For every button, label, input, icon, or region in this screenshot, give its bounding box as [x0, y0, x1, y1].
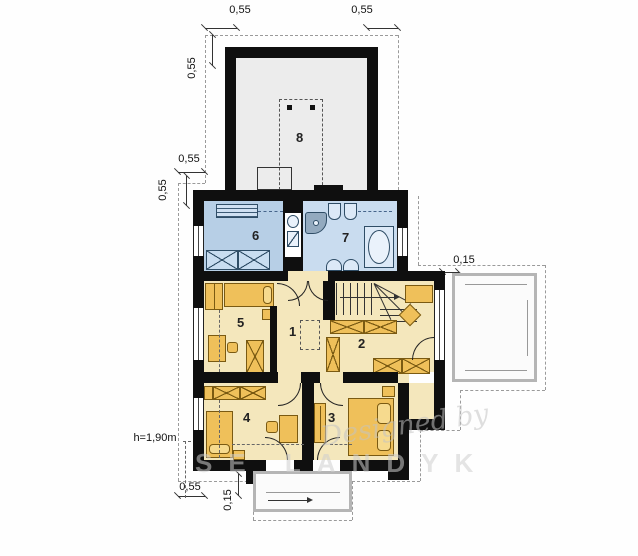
wall-segment	[225, 47, 236, 196]
wall-segment	[343, 372, 398, 383]
dresser	[405, 285, 433, 303]
wardrobe	[330, 320, 364, 334]
window	[193, 398, 204, 430]
desk	[208, 335, 226, 362]
hall-floor	[288, 271, 328, 281]
window	[193, 226, 204, 256]
eaves-outline	[205, 35, 398, 36]
stairs-treads	[336, 283, 374, 315]
post-marker	[287, 105, 292, 110]
dim-label-bottom-left: 0,55	[170, 481, 210, 493]
eaves-outline	[352, 481, 420, 482]
guide-line	[358, 211, 392, 212]
wall-segment	[270, 306, 277, 372]
wall-segment	[193, 271, 288, 281]
bathtub	[364, 226, 394, 268]
washbasin	[343, 259, 359, 271]
balcony-door-window	[434, 290, 445, 360]
dim-label-step-h: 0,55	[169, 153, 209, 165]
garage-bench	[257, 167, 292, 190]
dim-label-step-v: 0,55	[157, 170, 169, 210]
wardrobe	[240, 386, 266, 400]
room-label-6: 6	[252, 228, 259, 243]
eaves-outline	[178, 183, 205, 184]
eaves-outline	[418, 196, 419, 265]
washing-machine	[287, 215, 299, 228]
window	[397, 228, 408, 256]
wardrobe	[402, 358, 430, 374]
room-label-1: 1	[289, 324, 296, 339]
guide-line	[258, 211, 283, 212]
cabinet	[204, 386, 213, 400]
chair	[227, 342, 238, 353]
dim-label-garage-side: 0,55	[186, 48, 198, 88]
eaves-outline	[253, 520, 352, 521]
chair	[266, 421, 278, 433]
eaves-outline	[545, 265, 546, 390]
dim-label-top-right: 0,55	[342, 4, 382, 16]
dim-label-bottom-offset: 0,15	[222, 480, 234, 520]
dim-label-headroom: h=1,90m	[126, 432, 184, 444]
wardrobe	[213, 386, 240, 400]
wardrobe	[205, 283, 223, 310]
eaves-outline	[398, 35, 399, 190]
room-label-4: 4	[243, 410, 250, 425]
room-label-8: 8	[296, 130, 303, 145]
toilet	[328, 203, 341, 220]
balcony-east	[452, 273, 537, 382]
eaves-outline	[460, 390, 545, 391]
stairs-direction-arrow	[340, 297, 395, 298]
dim-label-top-left: 0,55	[220, 4, 260, 16]
watermark-caps: SE LANDYK	[195, 448, 489, 479]
wall-segment	[328, 271, 445, 281]
room-label-5: 5	[237, 315, 244, 330]
wardrobe	[238, 250, 270, 270]
wardrobe	[246, 340, 264, 373]
bidet	[344, 203, 357, 220]
wall-segment	[367, 47, 378, 196]
washbasin	[326, 259, 342, 271]
wall-segment	[193, 190, 408, 201]
room-label-7: 7	[342, 230, 349, 245]
knee-wall-line	[219, 310, 220, 372]
balcony-arrow	[268, 500, 308, 501]
drying-rack	[216, 204, 258, 218]
dim-line	[205, 28, 237, 29]
wall-segment	[193, 372, 278, 383]
dim-line	[178, 496, 205, 497]
wardrobe	[326, 337, 340, 372]
wardrobe	[206, 250, 238, 270]
wardrobe	[364, 320, 397, 334]
wall-segment	[225, 47, 378, 58]
dim-label-right-offset: 0,15	[444, 254, 484, 266]
dim-line	[186, 176, 187, 206]
window	[193, 308, 204, 360]
floor-plan: 0,55 0,55 0,55 0,55 0,55 0,15 0,55 0,15 …	[0, 0, 638, 556]
laundry-chute	[287, 231, 299, 247]
eaves-outline	[352, 481, 353, 520]
dim-line	[212, 35, 213, 66]
nightstand	[382, 386, 395, 397]
desk	[279, 415, 298, 443]
post-marker	[310, 105, 315, 110]
pillow	[263, 286, 272, 304]
knee-wall-line	[232, 444, 304, 445]
dim-line	[367, 28, 398, 29]
room-label-2: 2	[358, 336, 365, 351]
wall-segment	[301, 372, 320, 383]
attic-hatch	[300, 320, 320, 350]
